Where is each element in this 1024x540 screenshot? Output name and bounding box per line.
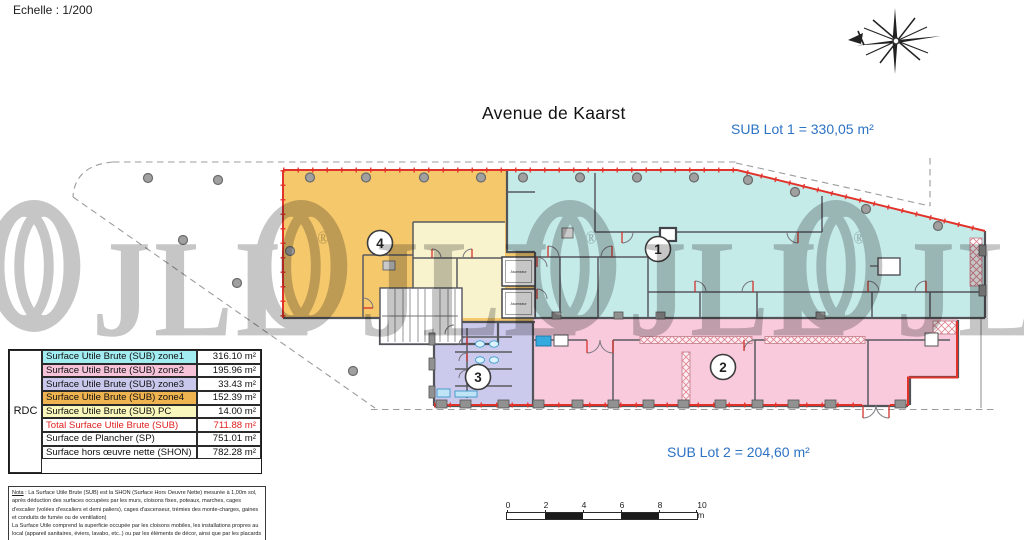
table-row-value: 711.88 m² [197,418,261,432]
table-row-value: 751.01 m² [197,432,261,446]
scale-tick-label: 6 [620,500,625,510]
svg-text:2: 2 [719,360,727,375]
table-row-label: Surface Utile Brute (SUB) PC [42,405,197,419]
scale-tick-label: 8 [658,500,663,510]
scale-bar-labels: 0 2 4 6 8 10 m [506,500,706,510]
table-row-label: Surface Utile Brute (SUB) zone2 [42,364,197,378]
zone-marker-2: 2 [711,355,736,380]
nota-paragraph-2: La Surface Utile comprend la superficie … [12,522,262,540]
table-row-label: Total Surface Utile Brute (SUB) [42,418,197,432]
table-row-label: Surface Utile Brute (SUB) zone1 [42,350,197,364]
zone-marker-1: 1 [646,237,671,262]
table-row-label: Surface Utile Brute (SUB) zone4 [42,391,197,405]
svg-text:4: 4 [376,236,384,251]
table-row-value: 195.96 m² [197,364,261,378]
scale-tick-label: 2 [544,500,549,510]
zone-marker-4: 4 [368,231,393,256]
elevator-label: Ascenseur [510,270,527,274]
floorplan-document: Ascenseur Ascenseur [0,0,1024,540]
table-row-value: 782.28 m² [197,446,261,460]
scale-tick-label: 0 [506,500,511,510]
street-name-label: Avenue de Kaarst [482,103,626,124]
lot2-area-label: SUB Lot 2 = 204,60 m² [667,444,810,460]
scale-tick-label: 4 [582,500,587,510]
svg-text:1: 1 [654,242,662,257]
elevator-label: Ascenseur [510,302,527,306]
nota-title: Nota [12,490,24,496]
table-row-label: Surface hors œuvre nette (SHON) [42,446,197,460]
table-floor-header: RDC [9,350,42,473]
table-row-label: Surface de Plancher (SP) [42,432,197,446]
zone2-pink-area [533,319,958,406]
nota-note: Nota : La Surface Utile Brute (SUB) est … [8,486,266,540]
scale-bar-graphic [506,512,698,520]
lot1-area-label: SUB Lot 1 = 330,05 m² [731,121,874,137]
scale-tick-label: 10 m [697,500,706,520]
svg-text:3: 3 [474,370,482,385]
compass-rose-icon [848,8,941,74]
table-row-value: 152.39 m² [197,391,261,405]
scale-label: Echelle : 1/200 [13,3,92,17]
staircase [380,288,462,344]
nota-paragraph-1: : La Surface Utile Brute (SUB) est la SH… [12,490,258,521]
zone-marker-3: 3 [466,365,491,390]
table-row-label: Surface Utile Brute (SUB) zone3 [42,377,197,391]
table-row-value: 14.00 m² [197,405,261,419]
zone1-cyan-area [507,170,985,319]
table-row-value: 316.10 m² [197,350,261,364]
scale-bar: 0 2 4 6 8 10 m [506,500,706,520]
surface-area-table: RDC Surface Utile Brute (SUB) zone1 316.… [8,349,262,474]
table-row-value: 33.43 m² [197,377,261,391]
